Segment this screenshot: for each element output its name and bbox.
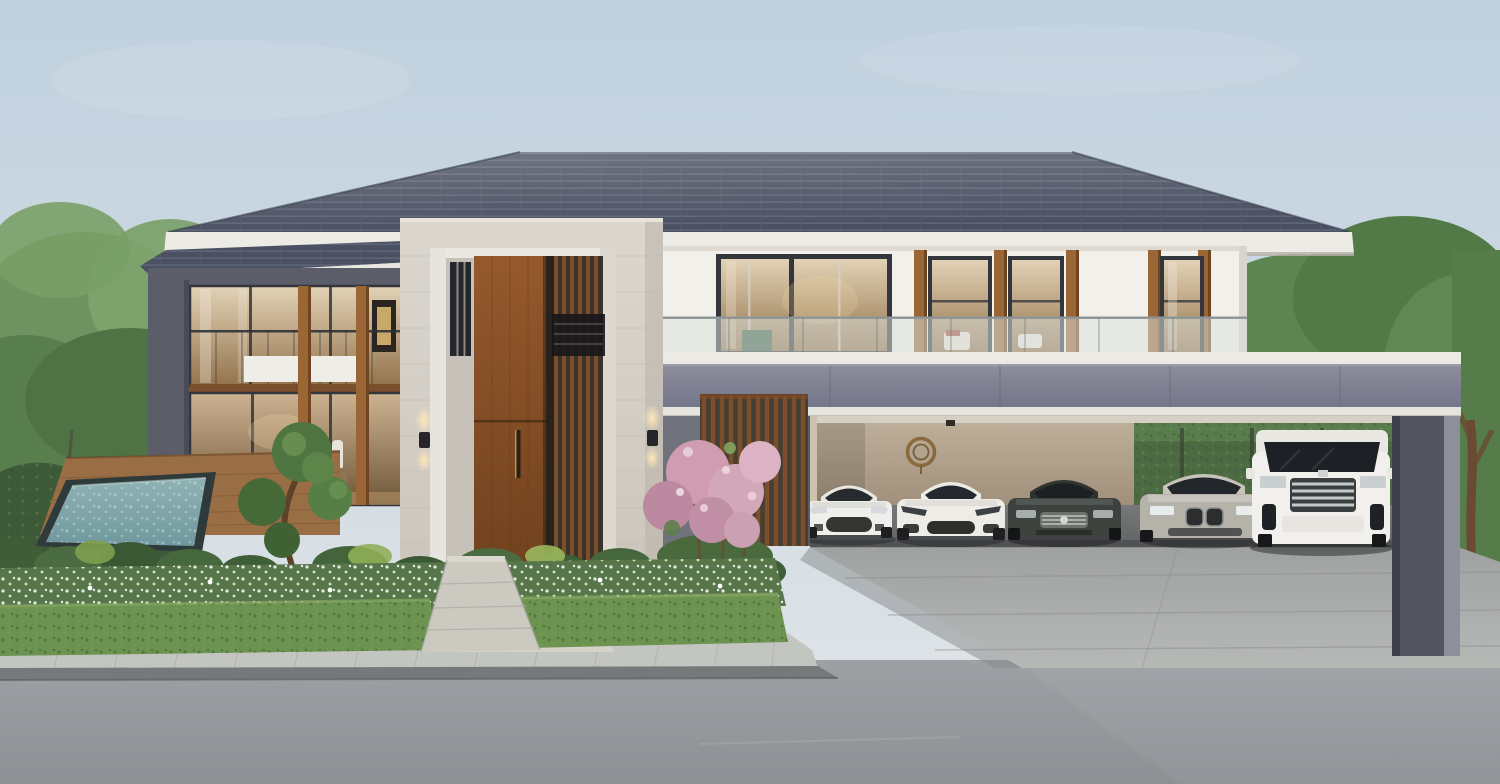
curb [0,666,838,680]
side-mirror [1246,468,1255,479]
wheel [993,528,1005,540]
wheel [1109,528,1121,540]
door-handle [516,430,521,478]
wall-lamp [647,430,658,446]
screen-vent [552,314,605,356]
fog-slot [1262,504,1276,530]
wheel [897,528,909,540]
hood-emblem [1060,516,1068,524]
sidelight-window [450,262,471,356]
lamp-glow [644,446,660,470]
lamp-glow [643,404,661,432]
headlight [1093,510,1113,518]
car-white-luxury-minivan [1246,430,1396,556]
wheel [1140,530,1153,542]
fog-slot [1370,504,1384,530]
canopy-top-trim [655,352,1461,364]
lamp-glow [416,448,432,472]
grille [1186,508,1203,526]
cloud [860,25,1300,95]
wheel [1008,528,1020,540]
headlight [1360,476,1386,488]
van-emblem [1318,470,1328,477]
glass-balustrade [655,317,1247,355]
carport-right-pillar [1392,416,1460,656]
carport-ceiling [810,416,1394,423]
palm-trunk [1180,428,1184,480]
curtain [200,289,211,383]
house-exterior-photo [0,0,1500,784]
lamp-glow [415,406,433,434]
floor-slab-edge [190,384,404,393]
wheel [1372,534,1386,547]
headlight [1150,506,1174,515]
wheel [1258,534,1272,547]
wheel [881,527,892,538]
grille [1206,508,1223,526]
headlight [1260,476,1286,488]
grille [826,517,872,532]
headlight [1016,510,1036,518]
ceiling-fixture [946,420,955,426]
walkway-step [447,556,505,562]
cloud [50,40,410,120]
wall-lamp [419,432,430,448]
grille [927,521,975,534]
tree-trunk [1470,420,1472,570]
